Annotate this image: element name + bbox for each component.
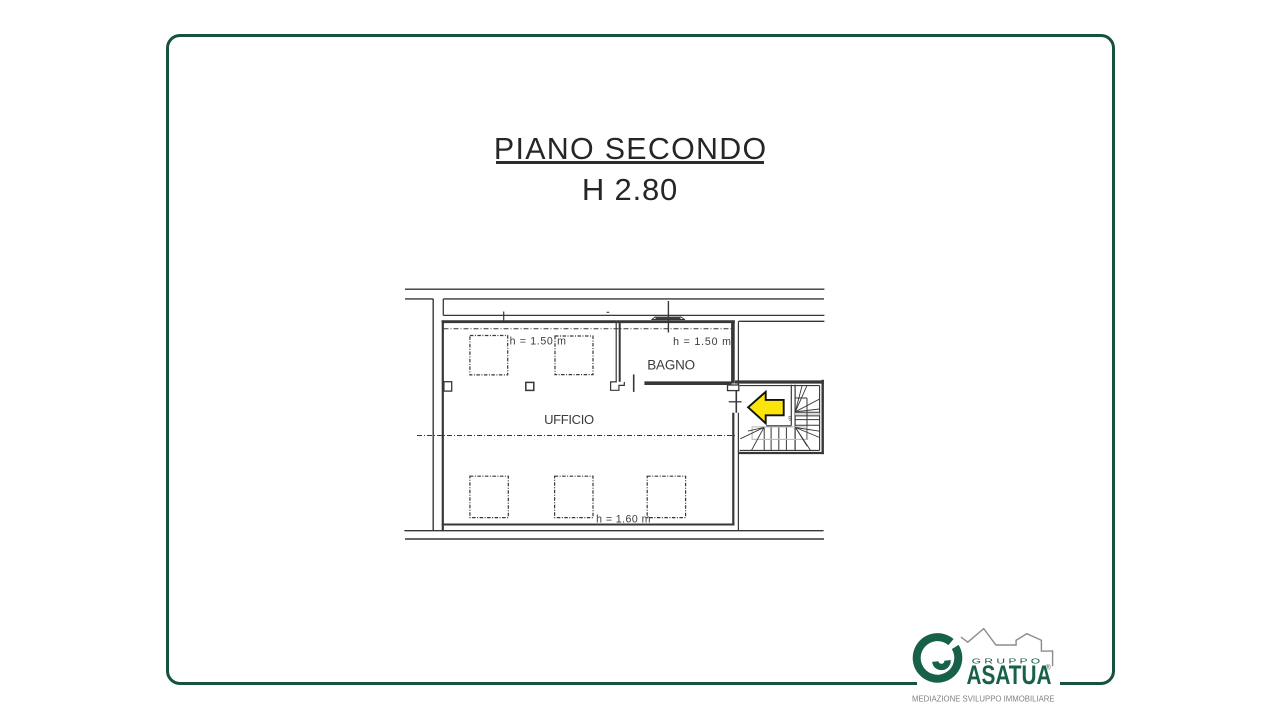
svg-text:BAGNO: BAGNO <box>647 358 695 373</box>
svg-text:h = 1.60 m: h = 1.60 m <box>596 513 650 525</box>
svg-text:h = 1.50 m: h = 1.50 m <box>673 336 731 348</box>
svg-text:h = 1.50 m: h = 1.50 m <box>510 336 566 348</box>
svg-text:UFFICIO: UFFICIO <box>544 412 594 427</box>
svg-text:®: ® <box>1046 663 1052 671</box>
svg-text:ASATUA: ASATUA <box>967 660 1052 690</box>
svg-text:MEDIAZIONE SVILUPPO IMMOBILIAR: MEDIAZIONE SVILUPPO IMMOBILIARE <box>912 694 1055 704</box>
